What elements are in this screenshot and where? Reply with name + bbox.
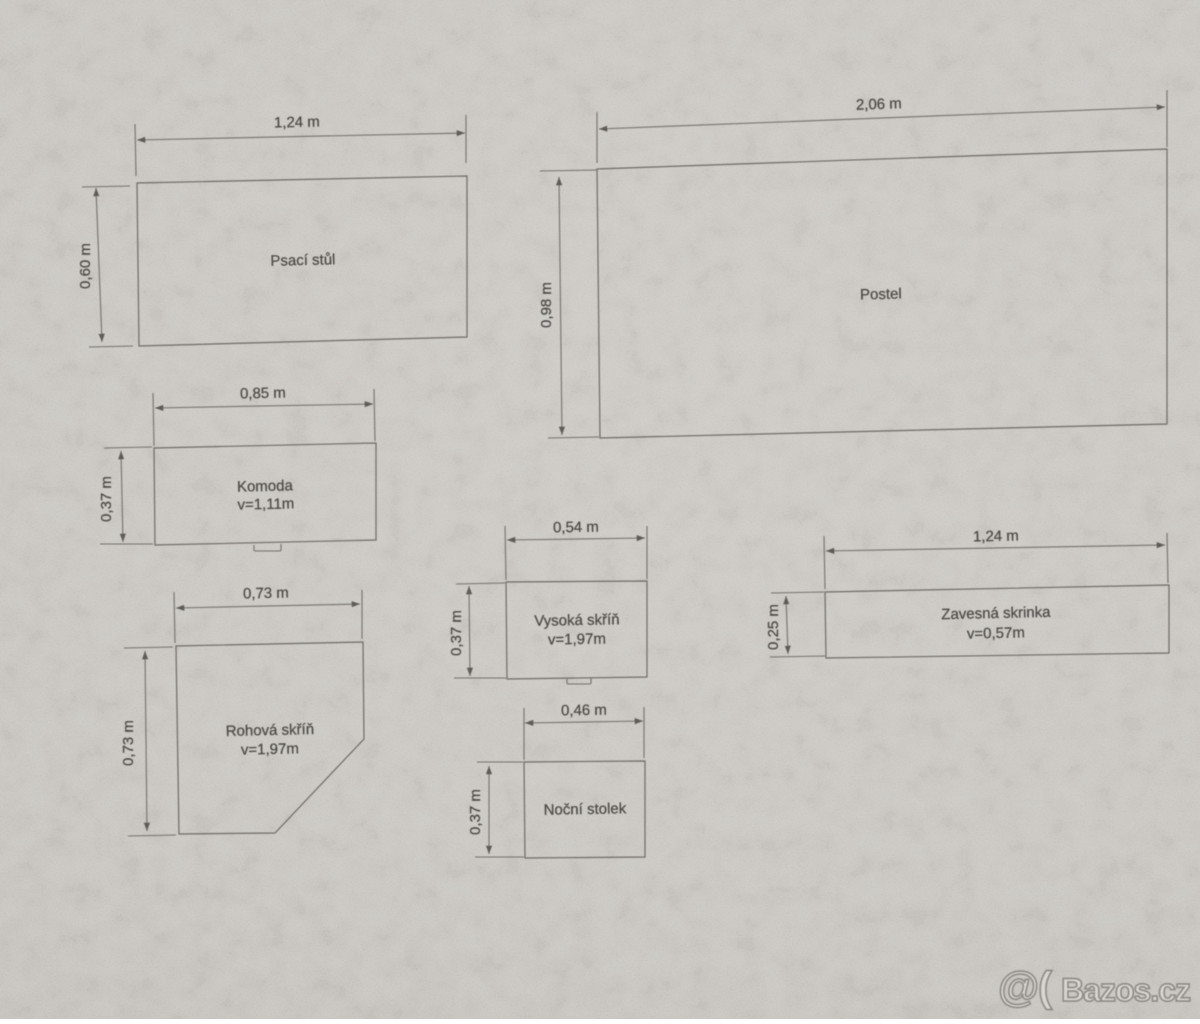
svg-text:v=1,97m: v=1,97m bbox=[548, 630, 606, 648]
svg-text:0,85 m: 0,85 m bbox=[240, 384, 286, 402]
svg-text:0,60 m: 0,60 m bbox=[77, 243, 94, 289]
svg-text:v=1,11m: v=1,11m bbox=[237, 495, 294, 513]
svg-text:0,37 m: 0,37 m bbox=[98, 476, 115, 522]
svg-text:v=0,57m: v=0,57m bbox=[967, 624, 1025, 642]
svg-text:v=1,97m: v=1,97m bbox=[241, 740, 299, 758]
svg-text:Noční stolek: Noční stolek bbox=[544, 800, 627, 818]
svg-text:1,24 m: 1,24 m bbox=[973, 527, 1019, 545]
svg-text:0,73 m: 0,73 m bbox=[243, 584, 289, 602]
svg-text:0,37 m: 0,37 m bbox=[448, 610, 465, 656]
svg-text:Rohová skříň: Rohová skříň bbox=[226, 721, 315, 740]
svg-text:0,54 m: 0,54 m bbox=[553, 519, 599, 537]
svg-text:Vysoká skříň: Vysoká skříň bbox=[534, 611, 620, 629]
svg-text:0,73 m: 0,73 m bbox=[120, 720, 137, 766]
svg-text:0,98 m: 0,98 m bbox=[538, 282, 555, 328]
svg-text:Zavesná skrinka: Zavesná skrinka bbox=[941, 604, 1051, 623]
svg-text:Postel: Postel bbox=[860, 285, 902, 303]
svg-text:Psací stůl: Psací stůl bbox=[270, 251, 335, 269]
svg-text:Komoda: Komoda bbox=[237, 477, 294, 495]
svg-text:0,25 m: 0,25 m bbox=[765, 604, 782, 650]
svg-text:1,24 m: 1,24 m bbox=[274, 113, 320, 131]
svg-text:0,37 m: 0,37 m bbox=[467, 789, 484, 835]
svg-text:0,46 m: 0,46 m bbox=[561, 702, 607, 720]
svg-text:2,06 m: 2,06 m bbox=[856, 95, 902, 114]
